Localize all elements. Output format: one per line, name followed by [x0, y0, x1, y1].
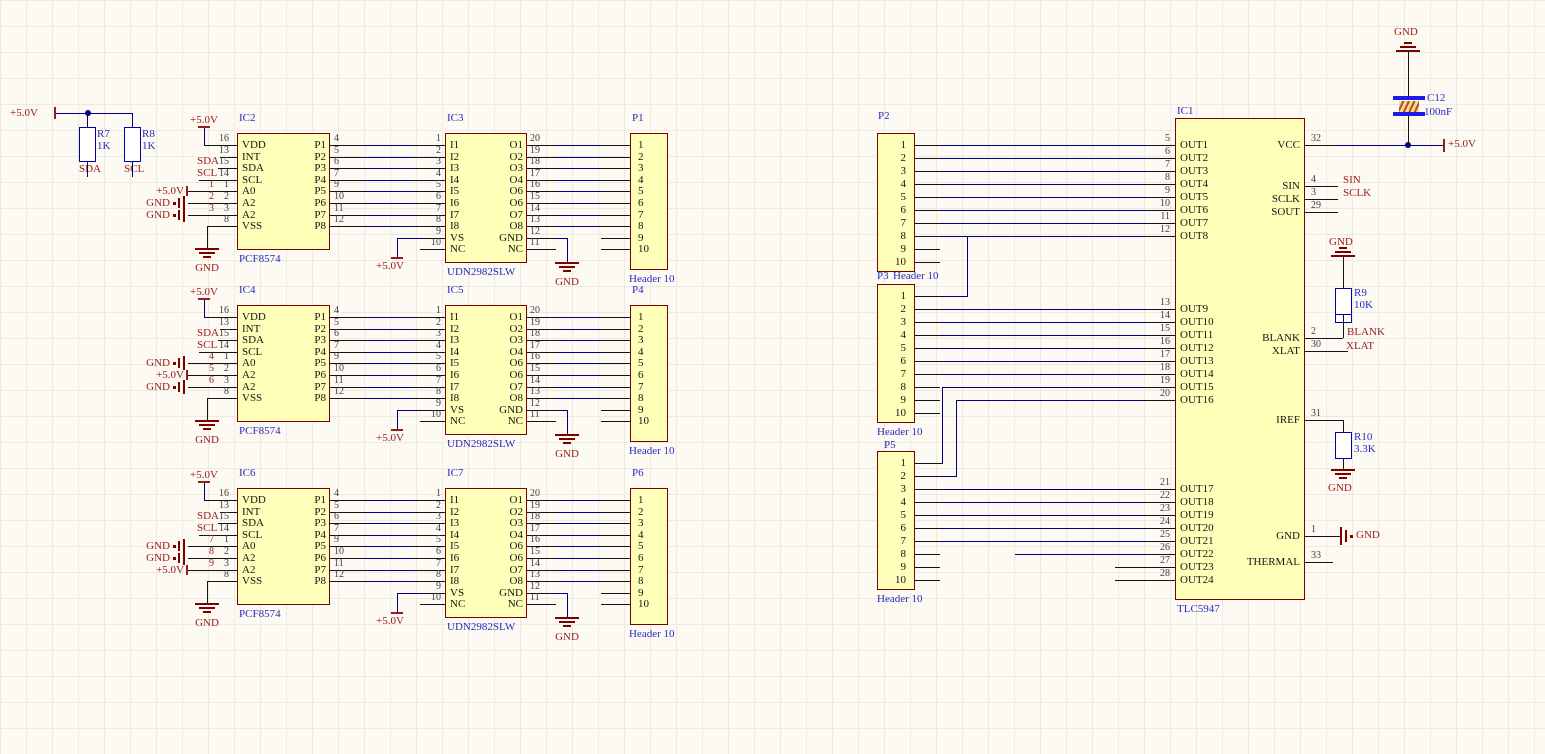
wire[interactable] — [940, 322, 1146, 323]
wire[interactable] — [556, 398, 601, 399]
wire[interactable] — [132, 162, 133, 177]
wire[interactable] — [915, 236, 940, 237]
gnd-port-label[interactable]: GND — [549, 631, 585, 643]
wire[interactable] — [1305, 212, 1338, 213]
wire[interactable] — [527, 249, 556, 250]
ic1-comment[interactable]: TLC5947 — [1177, 603, 1220, 615]
wire[interactable] — [940, 476, 957, 477]
net-label-sda[interactable]: SDA — [196, 327, 220, 339]
wire[interactable] — [567, 593, 568, 617]
wire[interactable] — [420, 421, 445, 422]
pin-number: 15 — [530, 191, 540, 203]
power-port-5v-icon — [391, 429, 403, 431]
wire[interactable] — [915, 296, 940, 297]
wire[interactable] — [601, 203, 630, 204]
wire[interactable] — [601, 581, 630, 582]
power-port-5v-rail[interactable]: +5.0V — [1448, 138, 1476, 150]
pin-name: OUT23 — [1180, 561, 1214, 573]
comment-ic6[interactable]: PCF8574 — [239, 608, 281, 620]
wire[interactable] — [132, 113, 133, 127]
capacitor-c12[interactable] — [1399, 101, 1419, 112]
wire[interactable] — [915, 184, 940, 185]
net-label-scl[interactable]: SCL — [124, 163, 144, 175]
wire[interactable] — [365, 157, 412, 158]
wire[interactable] — [915, 335, 940, 336]
wire[interactable] — [601, 226, 630, 227]
wire[interactable] — [601, 329, 630, 330]
p5-designator[interactable]: P5 — [884, 439, 896, 451]
wire[interactable] — [556, 226, 601, 227]
gnd-port-label[interactable]: GND — [549, 276, 585, 288]
net-label-xlat[interactable]: XLAT — [1346, 340, 1374, 352]
wire[interactable] — [365, 581, 412, 582]
wire[interactable] — [940, 528, 1146, 529]
wire[interactable] — [556, 512, 601, 513]
pin-name: I5 — [450, 357, 459, 369]
wire[interactable] — [601, 340, 630, 341]
wire[interactable] — [207, 581, 208, 603]
power-port-5v-label[interactable]: +5.0V — [187, 469, 221, 481]
comment-ic4[interactable]: PCF8574 — [239, 425, 281, 437]
wire[interactable] — [1408, 52, 1409, 96]
wire[interactable] — [556, 203, 601, 204]
wire[interactable] — [420, 604, 445, 605]
pin-number: 5 — [1144, 133, 1170, 145]
addr-net-number[interactable]: 8 — [204, 546, 214, 558]
wire[interactable] — [556, 558, 601, 559]
gnd-port-label[interactable]: GND — [134, 540, 170, 552]
gnd-port-top[interactable]: GND — [1394, 26, 1418, 38]
wire[interactable] — [940, 210, 1146, 211]
wire[interactable] — [567, 410, 568, 434]
wire[interactable] — [1305, 420, 1343, 421]
net-label-sda[interactable]: SDA — [79, 163, 101, 175]
wire[interactable] — [601, 168, 630, 169]
c12-designator[interactable]: C12 — [1427, 92, 1445, 104]
wire[interactable] — [365, 398, 412, 399]
pin-name: OUT22 — [1180, 548, 1214, 560]
pin-number: 6 — [415, 191, 441, 203]
wire[interactable] — [365, 535, 412, 536]
wire[interactable] — [940, 335, 1146, 336]
addr-net-number[interactable]: 7 — [204, 534, 214, 546]
wire[interactable] — [556, 352, 601, 353]
wire[interactable] — [556, 570, 601, 571]
wire[interactable] — [527, 604, 556, 605]
pin-number: 6 — [638, 369, 644, 381]
gnd-port-label[interactable]: GND — [134, 197, 170, 209]
pin-number: 16 — [1144, 336, 1170, 348]
wire[interactable] — [915, 580, 940, 581]
wire[interactable] — [365, 145, 412, 146]
wire[interactable] — [601, 375, 630, 376]
pin-number: 20 — [1144, 388, 1170, 400]
wire[interactable] — [365, 168, 412, 169]
designator-ic5[interactable]: IC5 — [447, 284, 464, 296]
wire[interactable] — [1343, 459, 1344, 469]
p1-body[interactable] — [630, 133, 668, 270]
designator-p6[interactable]: P6 — [632, 467, 644, 479]
wire[interactable] — [207, 398, 237, 399]
wire[interactable] — [556, 145, 601, 146]
wire[interactable] — [915, 171, 940, 172]
wire[interactable] — [956, 400, 957, 476]
wire[interactable] — [207, 398, 208, 420]
comment-ic7[interactable]: UDN2982SLW — [447, 621, 515, 633]
wire[interactable] — [556, 581, 601, 582]
pin-name: O8 — [463, 575, 523, 587]
designator-p4[interactable]: P4 — [632, 284, 644, 296]
wire[interactable] — [601, 317, 630, 318]
addr-net-number[interactable]: 4 — [204, 351, 214, 363]
wire[interactable] — [365, 215, 412, 216]
net-label-blank[interactable]: BLANK — [1347, 326, 1385, 338]
wire[interactable] — [967, 236, 968, 296]
r10-designator[interactable]: R10 — [1354, 431, 1372, 443]
wire[interactable] — [1305, 145, 1335, 146]
r9-value[interactable]: 10K — [1354, 299, 1373, 311]
net-label-scl[interactable]: SCL — [196, 522, 218, 534]
wire[interactable] — [556, 363, 601, 364]
wire[interactable] — [1146, 236, 1175, 237]
comment-p4[interactable]: Header 10 — [629, 445, 675, 457]
wire[interactable] — [915, 387, 940, 388]
wire[interactable] — [601, 604, 630, 605]
wire[interactable] — [397, 410, 398, 429]
gnd-port-label[interactable]: GND — [549, 448, 585, 460]
wire[interactable] — [365, 203, 412, 204]
pin-number: 12 — [334, 214, 344, 226]
pin-number: 15 — [530, 546, 540, 558]
r8-value[interactable]: 1K — [142, 140, 155, 152]
wire[interactable] — [365, 340, 412, 341]
pin-name: OUT15 — [1180, 381, 1214, 393]
wire[interactable] — [940, 502, 1146, 503]
wire[interactable] — [365, 546, 412, 547]
wire[interactable] — [915, 262, 940, 263]
wire[interactable] — [915, 361, 940, 362]
wire[interactable] — [527, 421, 556, 422]
power-port-5v-label[interactable]: +5.0V — [148, 185, 184, 197]
designator-ic2[interactable]: IC2 — [239, 112, 256, 124]
wire[interactable] — [207, 226, 237, 227]
wire[interactable] — [915, 145, 940, 146]
wire[interactable] — [397, 238, 398, 257]
pin-name: O6 — [463, 540, 523, 552]
wire[interactable] — [915, 567, 940, 568]
wire[interactable] — [397, 593, 398, 612]
wire[interactable] — [915, 158, 940, 159]
pin-name: OUT17 — [1180, 483, 1214, 495]
wire[interactable] — [1146, 400, 1175, 401]
wire[interactable] — [1305, 186, 1338, 187]
wire[interactable] — [915, 374, 940, 375]
wire[interactable] — [556, 387, 601, 388]
net-label-sin[interactable]: SIN — [1343, 174, 1361, 186]
wire[interactable] — [915, 223, 940, 224]
pin-number: 16 — [203, 305, 229, 317]
pin-number: 1 — [638, 311, 644, 323]
wire[interactable] — [940, 223, 1146, 224]
wire[interactable] — [601, 215, 630, 216]
wire[interactable] — [330, 398, 365, 399]
wire[interactable] — [601, 593, 630, 594]
wire[interactable] — [365, 387, 412, 388]
wire[interactable] — [915, 348, 940, 349]
wire[interactable] — [915, 476, 940, 477]
wire[interactable] — [365, 352, 412, 353]
wire[interactable] — [365, 363, 412, 364]
wire[interactable] — [365, 191, 412, 192]
net-label-sda[interactable]: SDA — [196, 510, 220, 522]
wire[interactable] — [940, 236, 1146, 237]
wire[interactable] — [915, 322, 940, 323]
gnd-port-label[interactable]: GND — [134, 209, 170, 221]
net-label-scl[interactable]: SCL — [196, 339, 218, 351]
r7-designator[interactable]: R7 — [97, 128, 110, 140]
wire[interactable] — [56, 113, 133, 114]
gnd-port-label[interactable]: GND — [134, 552, 170, 564]
addr-net-number[interactable]: 2 — [204, 191, 214, 203]
power-port-5v-label[interactable]: +5.0V — [370, 615, 410, 627]
wire[interactable] — [556, 329, 601, 330]
wire[interactable] — [207, 581, 237, 582]
pin-number: 9 — [878, 243, 906, 255]
wire[interactable] — [420, 249, 445, 250]
wire[interactable] — [940, 145, 1146, 146]
wire[interactable] — [1343, 420, 1344, 432]
wire[interactable] — [915, 210, 940, 211]
wire[interactable] — [915, 413, 940, 414]
pin-number: 1 — [878, 139, 906, 151]
wire[interactable] — [601, 570, 630, 571]
wire[interactable] — [556, 168, 601, 169]
gnd-port-r10[interactable]: GND — [1328, 482, 1352, 494]
net-label-scl[interactable]: SCL — [196, 167, 218, 179]
gnd-port-label[interactable]: GND — [134, 381, 170, 393]
pin-number: 8 — [203, 569, 229, 581]
wire[interactable] — [365, 500, 412, 501]
gnd-port-label[interactable]: GND — [134, 357, 170, 369]
r7-value[interactable]: 1K — [97, 140, 110, 152]
wire[interactable] — [365, 317, 412, 318]
wire[interactable] — [1305, 199, 1338, 200]
gnd-bar-icon — [183, 380, 185, 394]
wire[interactable] — [330, 226, 365, 227]
wire[interactable] — [915, 463, 940, 464]
wire[interactable] — [365, 512, 412, 513]
wire[interactable] — [940, 541, 1146, 542]
designator-p1[interactable]: P1 — [632, 112, 644, 124]
resistor-r7[interactable] — [79, 127, 96, 162]
wire[interactable] — [1343, 257, 1344, 288]
r9-designator[interactable]: R9 — [1354, 287, 1367, 299]
wire[interactable] — [915, 502, 940, 503]
wire[interactable] — [915, 309, 940, 310]
pin-name: P8 — [276, 220, 326, 232]
wire[interactable] — [601, 546, 630, 547]
wire[interactable] — [601, 410, 630, 411]
p5-comment[interactable]: Header 10 — [877, 593, 923, 605]
wire[interactable] — [1305, 562, 1333, 563]
power-port-5v-label[interactable]: +5.0V — [187, 286, 221, 298]
p6-body[interactable] — [630, 488, 668, 625]
wire[interactable] — [601, 180, 630, 181]
p2-designator[interactable]: P2 — [878, 110, 890, 122]
wire[interactable] — [956, 400, 1146, 401]
wire[interactable] — [601, 249, 630, 250]
wire[interactable] — [940, 184, 1146, 185]
r10-value[interactable]: 3.3K — [1354, 443, 1376, 455]
wire[interactable] — [556, 215, 601, 216]
wire[interactable] — [556, 191, 601, 192]
wire[interactable] — [915, 249, 940, 250]
pin-name: P5 — [276, 185, 326, 197]
wire[interactable] — [87, 162, 88, 177]
designator-ic3[interactable]: IC3 — [447, 112, 464, 124]
wire[interactable] — [915, 528, 940, 529]
wire[interactable] — [601, 352, 630, 353]
wire[interactable] — [1343, 315, 1344, 338]
gnd-port-label[interactable]: GND — [189, 617, 225, 629]
wire[interactable] — [556, 340, 601, 341]
wire[interactable] — [601, 238, 630, 239]
wire[interactable] — [940, 489, 1146, 490]
r8-designator[interactable]: R8 — [142, 128, 155, 140]
designator-ic6[interactable]: IC6 — [239, 467, 256, 479]
wire[interactable] — [601, 363, 630, 364]
wire[interactable] — [556, 157, 601, 158]
comment-ic3[interactable]: UDN2982SLW — [447, 266, 515, 278]
gnd-port-label[interactable]: GND — [189, 262, 225, 274]
wire[interactable] — [330, 581, 365, 582]
wire[interactable] — [1408, 116, 1409, 145]
addr-net-number[interactable]: 5 — [204, 363, 214, 375]
wire[interactable] — [601, 512, 630, 513]
comment-p6[interactable]: Header 10 — [629, 628, 675, 640]
ic1-designator[interactable]: IC1 — [1177, 105, 1194, 117]
wire[interactable] — [601, 145, 630, 146]
wire[interactable] — [915, 400, 940, 401]
wire[interactable] — [940, 197, 1146, 198]
pin-number: 10 — [638, 598, 649, 610]
net-label-sda[interactable]: SDA — [196, 155, 220, 167]
wire[interactable] — [601, 387, 630, 388]
wire[interactable] — [940, 171, 1146, 172]
wire[interactable] — [915, 515, 940, 516]
pin-number: 5 — [415, 179, 441, 191]
wire[interactable] — [87, 113, 88, 127]
pin-number: 8 — [415, 214, 441, 226]
wire[interactable] — [556, 375, 601, 376]
wire[interactable] — [556, 523, 601, 524]
wire[interactable] — [601, 523, 630, 524]
resistor-r8[interactable] — [124, 127, 141, 162]
gnd-bar-icon — [1350, 535, 1353, 538]
wire[interactable] — [940, 515, 1146, 516]
pin-number: 1 — [878, 457, 906, 469]
power-port-5v-label[interactable]: +5.0V — [148, 564, 184, 576]
resistor-r9[interactable] — [1335, 288, 1352, 315]
wire[interactable] — [915, 541, 940, 542]
designator-ic7[interactable]: IC7 — [447, 467, 464, 479]
wire[interactable] — [940, 463, 943, 464]
wire[interactable] — [1335, 145, 1443, 146]
wire[interactable] — [556, 535, 601, 536]
gnd-port-ic1[interactable]: GND — [1356, 529, 1380, 541]
wire[interactable] — [601, 535, 630, 536]
wire[interactable] — [601, 421, 630, 422]
wire[interactable] — [556, 546, 601, 547]
p3-comment[interactable]: Header 10 — [877, 426, 923, 438]
wire[interactable] — [601, 398, 630, 399]
pin-number: 4 — [334, 133, 339, 145]
wire[interactable] — [567, 238, 568, 262]
pin-number: 10 — [878, 256, 906, 268]
wire[interactable] — [940, 374, 1146, 375]
wire[interactable] — [207, 226, 208, 248]
wire[interactable] — [940, 309, 1146, 310]
c12-value[interactable]: 100nF — [1424, 106, 1452, 118]
wire[interactable] — [601, 500, 630, 501]
comment-ic5[interactable]: UDN2982SLW — [447, 438, 515, 450]
wire[interactable] — [1115, 580, 1175, 581]
wire[interactable] — [365, 375, 412, 376]
wire[interactable] — [942, 387, 943, 463]
power-port-5v-label[interactable]: +5.0V — [148, 369, 184, 381]
wire[interactable] — [365, 523, 412, 524]
wire[interactable] — [601, 191, 630, 192]
wire[interactable] — [365, 226, 412, 227]
wire[interactable] — [365, 558, 412, 559]
wire[interactable] — [365, 570, 412, 571]
net-label-sclk[interactable]: SCLK — [1343, 187, 1371, 199]
wire[interactable] — [915, 489, 940, 490]
wire[interactable] — [942, 387, 1146, 388]
wire[interactable] — [1015, 554, 1146, 555]
comment-ic2[interactable]: PCF8574 — [239, 253, 281, 265]
wire[interactable] — [365, 329, 412, 330]
wire[interactable] — [365, 180, 412, 181]
p4-body[interactable] — [630, 305, 668, 442]
wire[interactable] — [556, 500, 601, 501]
wire[interactable] — [556, 180, 601, 181]
gnd-bar-icon — [183, 356, 185, 370]
power-port-5v-label[interactable]: +5.0V — [187, 114, 221, 126]
wire[interactable] — [915, 554, 940, 555]
pin-name: I1 — [450, 139, 459, 151]
addr-net-number[interactable]: 1 — [204, 179, 214, 191]
wire[interactable] — [556, 317, 601, 318]
designator-ic4[interactable]: IC4 — [239, 284, 256, 296]
wire[interactable] — [601, 157, 630, 158]
resistor-r10[interactable] — [1335, 432, 1352, 459]
power-port-5v-label[interactable]: +5.0V — [370, 260, 410, 272]
wire[interactable] — [915, 197, 940, 198]
wire[interactable] — [1305, 351, 1348, 352]
wire[interactable] — [940, 361, 1146, 362]
wire[interactable] — [940, 158, 1146, 159]
wire[interactable] — [1305, 536, 1340, 537]
wire[interactable] — [940, 348, 1146, 349]
power-port-5v-label[interactable]: +5.0V — [10, 107, 38, 119]
wire[interactable] — [601, 558, 630, 559]
pin-name: BLANK — [1220, 332, 1300, 344]
gnd-port-label[interactable]: GND — [189, 434, 225, 446]
pin-name: A2 — [242, 197, 255, 209]
wire[interactable] — [940, 296, 968, 297]
power-port-5v-label[interactable]: +5.0V — [370, 432, 410, 444]
